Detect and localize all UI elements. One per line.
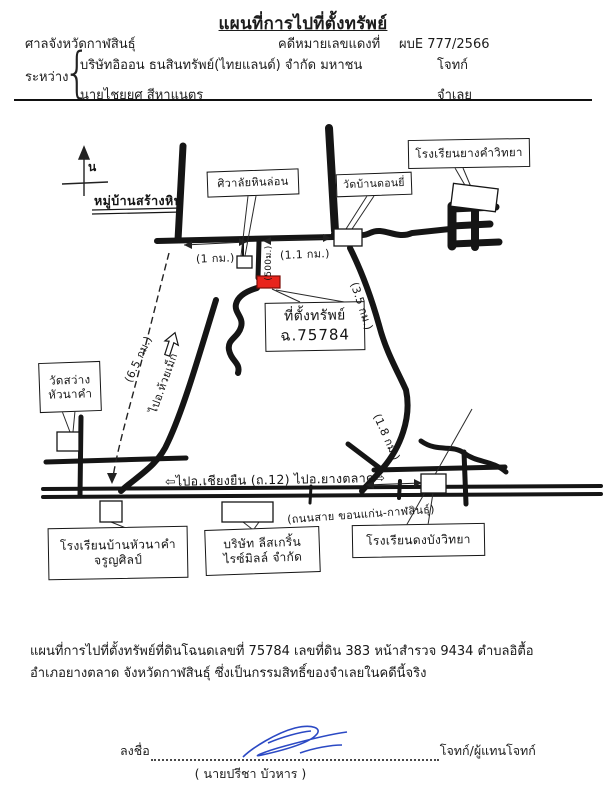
description-line2: อำเภอยางตลาด จังหวัดกาฬสินธุ์ ซึ่งเป็นกร… [30, 663, 575, 685]
compass-north-label: น [88, 158, 96, 177]
label-wat-don-yi: วัดบ้านดอนยี่ [336, 172, 413, 198]
highway-direction-label: ⇦ไปอ.เชียงยืน (ถ.12) ไปอ.ยางตลาด⇨ [165, 468, 386, 492]
label-crematorium: ศิวาลัยหินล่อน [207, 168, 300, 197]
map-description: แผนที่การไปที่ตั้งทรัพย์ที่ดินโฉนดเลขที่… [30, 641, 575, 685]
wat-sawang-line1: วัดสว่าง [49, 372, 91, 388]
compass-icon [62, 147, 108, 196]
label-wat-sawang: วัดสว่าง หัวนาคำ [38, 361, 102, 413]
school-huanakham-line2: จรูญศิลป์ [94, 553, 142, 569]
village-label: หมู่บ้านสร้างหิน [94, 191, 183, 211]
signature-role: โจทก์/ผู้แทนโจทก์ [440, 741, 536, 761]
signature-label: ลงชื่อ [120, 741, 150, 761]
distance-500m: (500ม.) [261, 238, 275, 288]
property-deed-number: ฉ.75784 [280, 325, 350, 345]
description-line1: แผนที่การไปที่ตั้งทรัพย์ที่ดินโฉนดเลขที่… [30, 641, 575, 663]
label-school-huanakham: โรงเรียนบ้านหัวนาคำ จรูญศิลป์ [48, 526, 189, 580]
label-school-dong-bang: โรงเรียนดงบังวิทยา [352, 523, 486, 558]
distance-1km: (1 กม.) [196, 248, 235, 267]
company-line2: ไรซ์มิลล์ จำกัด [223, 550, 302, 568]
document-page: แผนที่การไปที่ตั้งทรัพย์ ศาลจังหวัดกาฬสิ… [0, 0, 606, 800]
signature-line [151, 745, 439, 761]
label-property-location: ที่ตั้งทรัพย์ ฉ.75784 [265, 301, 366, 352]
signer-name: ( นายปรีชา บัวหาร ) [168, 764, 333, 784]
school-huanakham-line1: โรงเรียนบ้านหัวนาคำ [60, 537, 176, 554]
wat-sawang-line2: หัวนาคำ [48, 386, 92, 402]
label-school-yang-kham: โรงเรียนยางคำวิทยา [408, 138, 530, 169]
signature-row: ลงชื่อโจทก์/ผู้แทนโจทก์ [120, 741, 536, 761]
label-company-rice-mill: บริษัท ลีสเกริ้น ไรซ์มิลล์ จำกัด [204, 526, 321, 576]
distance-1-1km: (1.1 กม.) [280, 244, 330, 264]
property-location-title: ที่ตั้งทรัพย์ [284, 308, 346, 327]
